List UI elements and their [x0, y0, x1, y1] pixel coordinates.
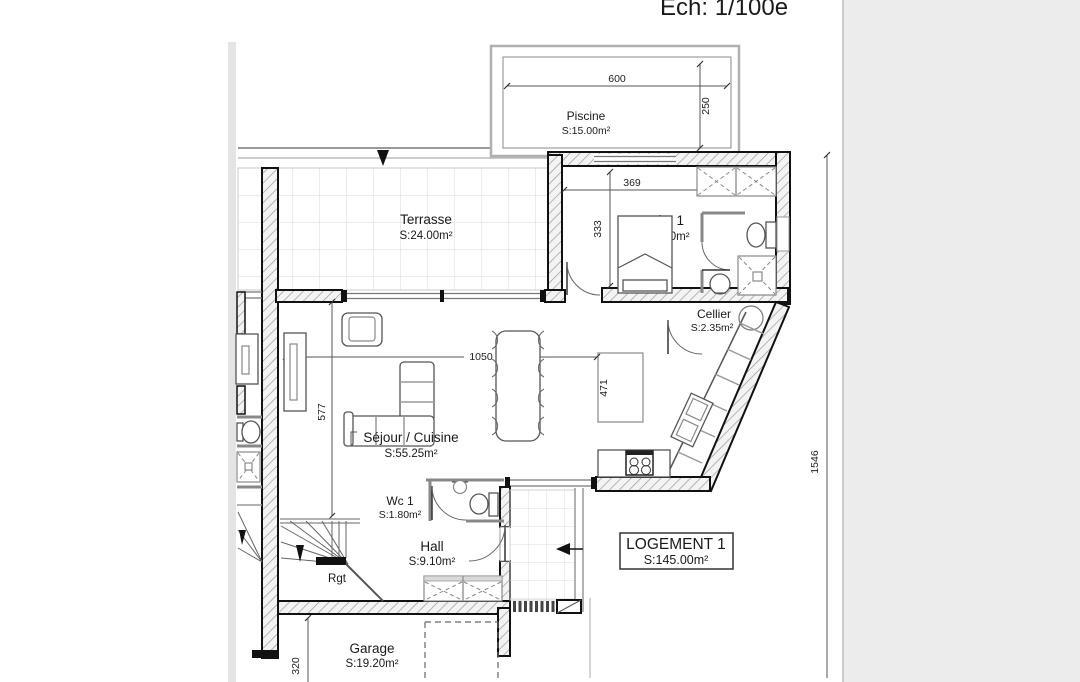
logement-area: S:145.00m² — [644, 553, 709, 567]
hall-closet-symbol — [424, 576, 502, 601]
room-terrasse: Terrasse S:24.00m² — [238, 168, 548, 290]
toilet-symbol — [747, 222, 776, 248]
neighbor-tv-unit-symbol — [236, 334, 258, 384]
porch-tile-grid — [510, 490, 575, 600]
svg-text:250: 250 — [700, 97, 712, 115]
room-label-garage: Garage — [349, 641, 394, 656]
floor-plan-page: Ech: 1/100e 600 250 Piscine S:15.00m² Te… — [0, 0, 1080, 682]
room-area-hall: S:9.10m² — [409, 556, 456, 568]
room-area-terrasse: S:24.00m² — [399, 230, 452, 242]
armchair-symbol — [342, 313, 382, 346]
svg-text:1050: 1050 — [469, 351, 493, 363]
svg-text:369: 369 — [623, 177, 641, 189]
washbasin-symbol — [710, 274, 730, 294]
bed-symbol — [618, 216, 672, 293]
logement-title: LOGEMENT 1 — [626, 536, 726, 553]
shower-symbol — [738, 256, 776, 295]
closet-symbol — [697, 167, 776, 196]
kitchen-island-symbol: 471 — [598, 353, 643, 422]
terrace-tile-grid — [238, 168, 548, 290]
neighbor-shower-symbol — [237, 452, 260, 482]
tv-unit-symbol — [284, 333, 306, 411]
dining-table-symbol — [492, 331, 544, 441]
page-left-edge — [228, 42, 236, 682]
room-label-cellier: Cellier — [697, 307, 731, 321]
toilet-symbol — [470, 493, 498, 516]
room-area-sejour: S:55.25m² — [384, 448, 437, 460]
svg-text:577: 577 — [316, 403, 328, 421]
room-label-wc1: Wc 1 — [386, 494, 414, 508]
room-label-hall: Hall — [420, 539, 443, 554]
scale-label: Ech: 1/100e — [660, 0, 788, 21]
right-side-panel — [843, 0, 1080, 682]
svg-text:1546: 1546 — [809, 450, 821, 474]
rangement-label: Rgt — [328, 573, 347, 585]
svg-text:320: 320 — [290, 657, 302, 675]
room-label-sejour: Séjour / Cuisine — [363, 430, 458, 445]
room-area-garage: S:19.20m² — [345, 658, 398, 670]
room-label-terrasse: Terrasse — [400, 212, 452, 227]
room-area-wc1: S:1.80m² — [379, 509, 422, 521]
neighbor-toilet-symbol — [237, 421, 260, 443]
room-area-cellier: S:2.35m² — [691, 322, 734, 334]
svg-text:600: 600 — [608, 73, 626, 85]
floor-plan-drawing: Ech: 1/100e 600 250 Piscine S:15.00m² Te… — [0, 0, 1080, 682]
room-area-piscine: S:15.00m² — [562, 125, 611, 137]
dim-island-length: 471 — [598, 379, 610, 397]
room-label-piscine: Piscine — [567, 109, 606, 123]
svg-text:333: 333 — [592, 220, 604, 238]
cooktop-symbol — [626, 451, 653, 475]
title-block: LOGEMENT 1 S:145.00m² — [620, 533, 733, 569]
